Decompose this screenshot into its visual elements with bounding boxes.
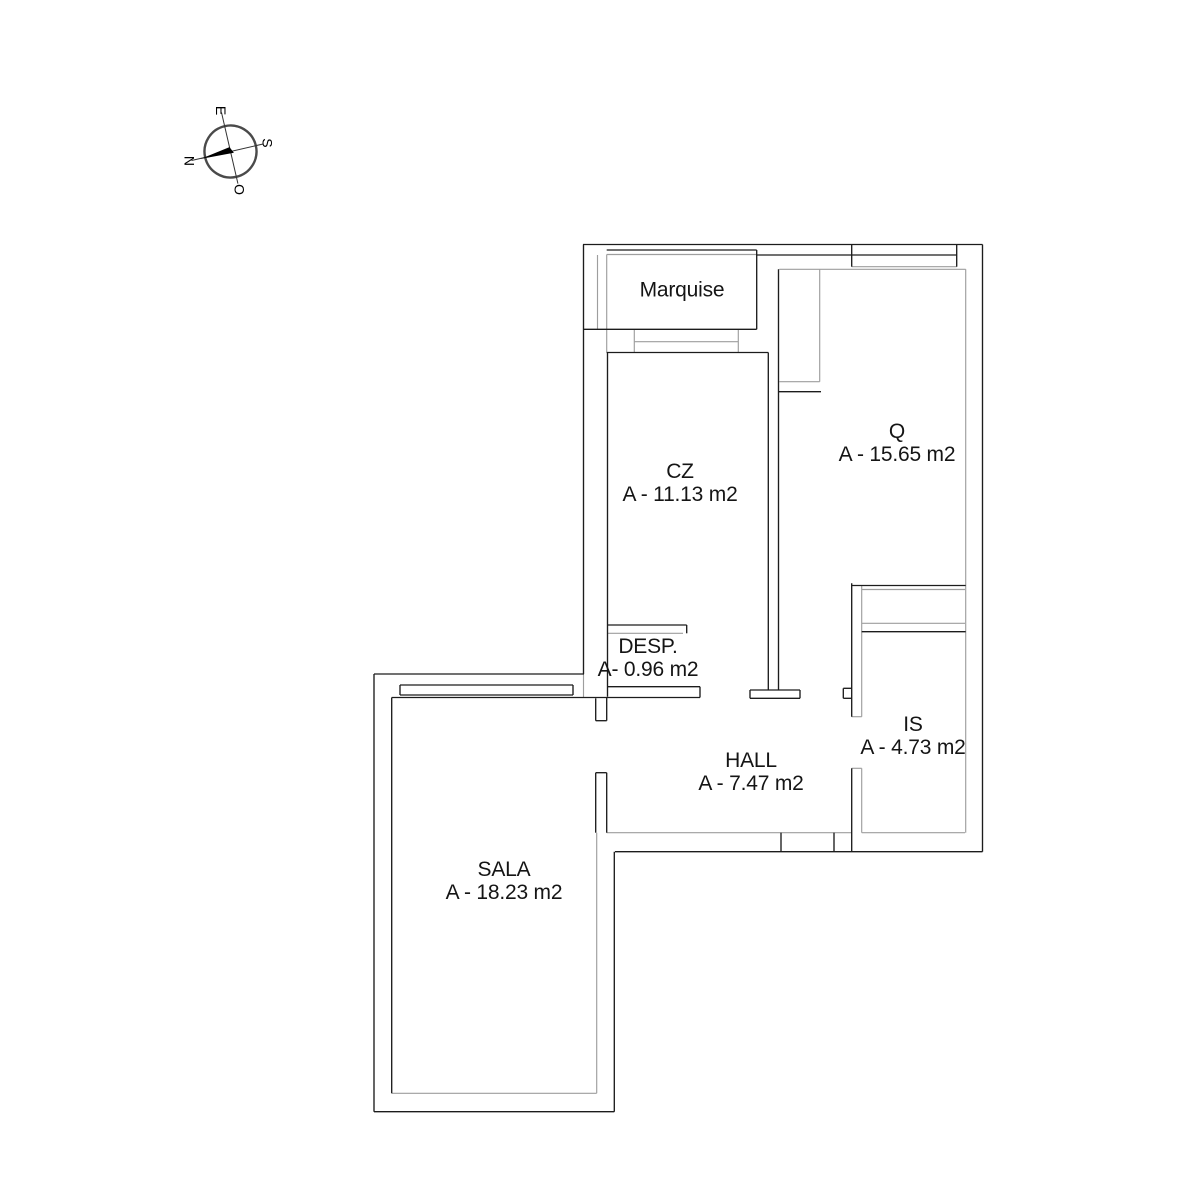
compass-rose: ESON [170,94,287,208]
floorplan-drawing: ESON [0,0,1200,1200]
compass-letter-E: E [213,106,229,115]
compass-letter-O: O [231,184,247,195]
floorplan-canvas: ESON MarquiseCZA - 11.13 m2QA - 15.65 m2… [0,0,1200,1200]
compass-letter-N: N [182,156,198,166]
compass-letter-S: S [260,138,276,147]
walls-dark [374,245,983,1112]
